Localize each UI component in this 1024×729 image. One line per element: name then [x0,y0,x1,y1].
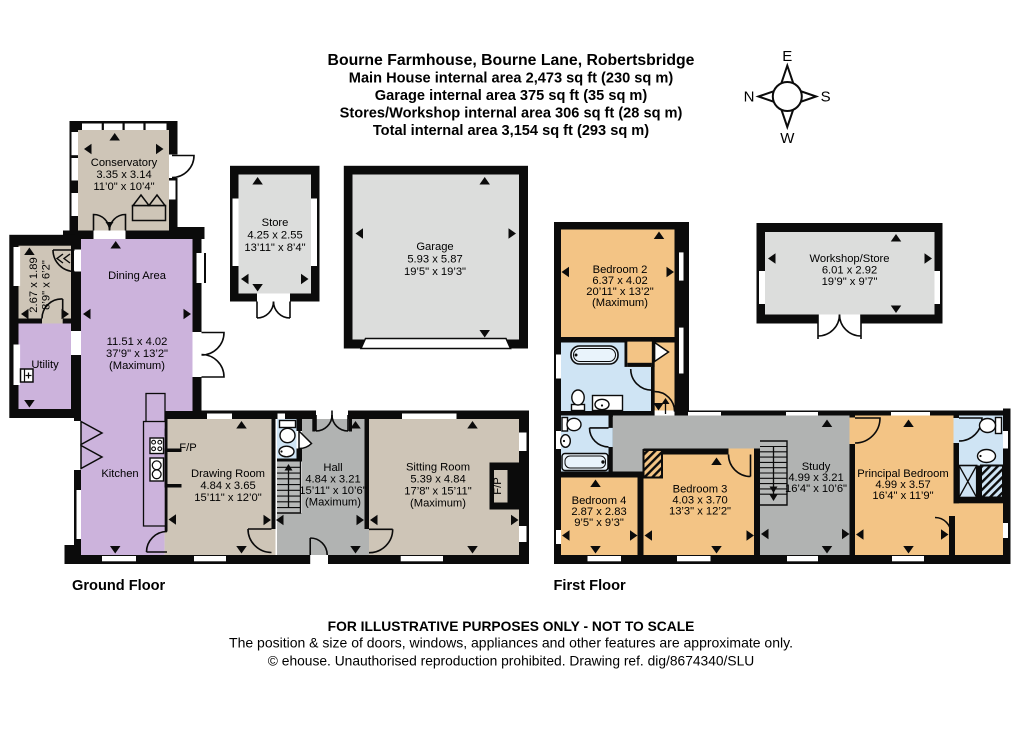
svg-text:Sitting Room: Sitting Room [406,462,470,474]
svg-text:W: W [780,130,795,147]
svg-text:2.67 x 1.89: 2.67 x 1.89 [28,257,40,312]
svg-text:Store: Store [262,217,289,229]
svg-text:(Maximum): (Maximum) [305,497,361,509]
svg-text:Stores/Workshop internal area: Stores/Workshop internal area 306 sq ft … [340,106,683,122]
svg-text:Bourne Farmhouse, Bourne Lane,: Bourne Farmhouse, Bourne Lane, Robertsbr… [328,52,695,69]
svg-text:16’4" x 11’9": 16’4" x 11’9" [872,490,933,502]
svg-text:(Maximum): (Maximum) [592,297,648,309]
svg-text:N: N [744,89,755,106]
svg-text:First Floor: First Floor [554,578,626,594]
svg-text:© ehouse. Unauthorised reprodu: © ehouse. Unauthorised reproduction proh… [268,654,754,669]
svg-text:(Maximum): (Maximum) [109,360,165,372]
svg-text:4.25 x 2.55: 4.25 x 2.55 [247,230,302,242]
svg-text:Hall: Hall [323,462,342,474]
svg-text:19’5" x 19’3": 19’5" x 19’3" [404,266,466,278]
svg-text:19’9" x 9’7": 19’9" x 9’7" [822,276,878,288]
svg-text:The position & size of doors,: The position & size of doors, windows, a… [229,635,793,651]
svg-text:FOR ILLUSTRATIVE PURPOSES ONLY: FOR ILLUSTRATIVE PURPOSES ONLY - NOT TO … [328,619,695,634]
svg-text:Garage: Garage [416,241,453,253]
svg-text:S: S [821,89,831,106]
svg-text:Dining Area: Dining Area [108,270,167,282]
svg-text:Garage internal area 375 sq ft: Garage internal area 375 sq ft (35 sq m) [375,88,648,104]
svg-text:16’4" x 10’6": 16’4" x 10’6" [785,483,847,495]
svg-text:37’9" x 13’2": 37’9" x 13’2" [106,348,168,360]
svg-text:Drawing Room: Drawing Room [191,468,265,480]
svg-text:Main House internal area 2,473: Main House internal area 2,473 sq ft (23… [349,71,674,87]
svg-text:6.01 x 2.92: 6.01 x 2.92 [822,265,877,277]
svg-text:5.93 x 5.87: 5.93 x 5.87 [407,254,462,266]
svg-text:(Maximum): (Maximum) [410,498,466,510]
svg-text:Ground Floor: Ground Floor [72,578,166,594]
svg-text:13’3" x 12’2": 13’3" x 12’2" [669,506,731,518]
svg-text:13’11" x 8’4": 13’11" x 8’4" [244,242,305,254]
svg-text:15’11" x 12’0": 15’11" x 12’0" [194,492,261,504]
svg-text:8’9" x 6’2": 8’9" x 6’2" [41,260,53,310]
svg-text:F/P: F/P [179,442,196,454]
svg-text:Utility: Utility [31,359,59,371]
svg-text:E: E [782,48,792,65]
svg-text:4.84 x 3.21: 4.84 x 3.21 [305,474,360,486]
svg-text:Kitchen: Kitchen [101,468,138,480]
svg-text:Conservatory: Conservatory [91,157,158,169]
svg-text:4.84 x 3.65: 4.84 x 3.65 [200,480,255,492]
svg-text:15’11" x 10’6": 15’11" x 10’6" [299,485,366,497]
svg-text:11.51 x 4.02: 11.51 x 4.02 [107,336,168,348]
svg-text:Total internal area 3,154 sq f: Total internal area 3,154 sq ft (293 sq … [373,123,649,139]
svg-text:3.35 x 3.14: 3.35 x 3.14 [96,169,151,181]
svg-text:5.39 x 4.84: 5.39 x 4.84 [410,474,465,486]
svg-text:Workshop/Store: Workshop/Store [809,253,889,265]
svg-text:17’8" x 15’11": 17’8" x 15’11" [404,486,471,498]
svg-text:9’5" x 9’3": 9’5" x 9’3" [574,517,624,529]
svg-text:F/P: F/P [492,477,504,494]
svg-text:11’0" x 10’4": 11’0" x 10’4" [93,181,154,193]
